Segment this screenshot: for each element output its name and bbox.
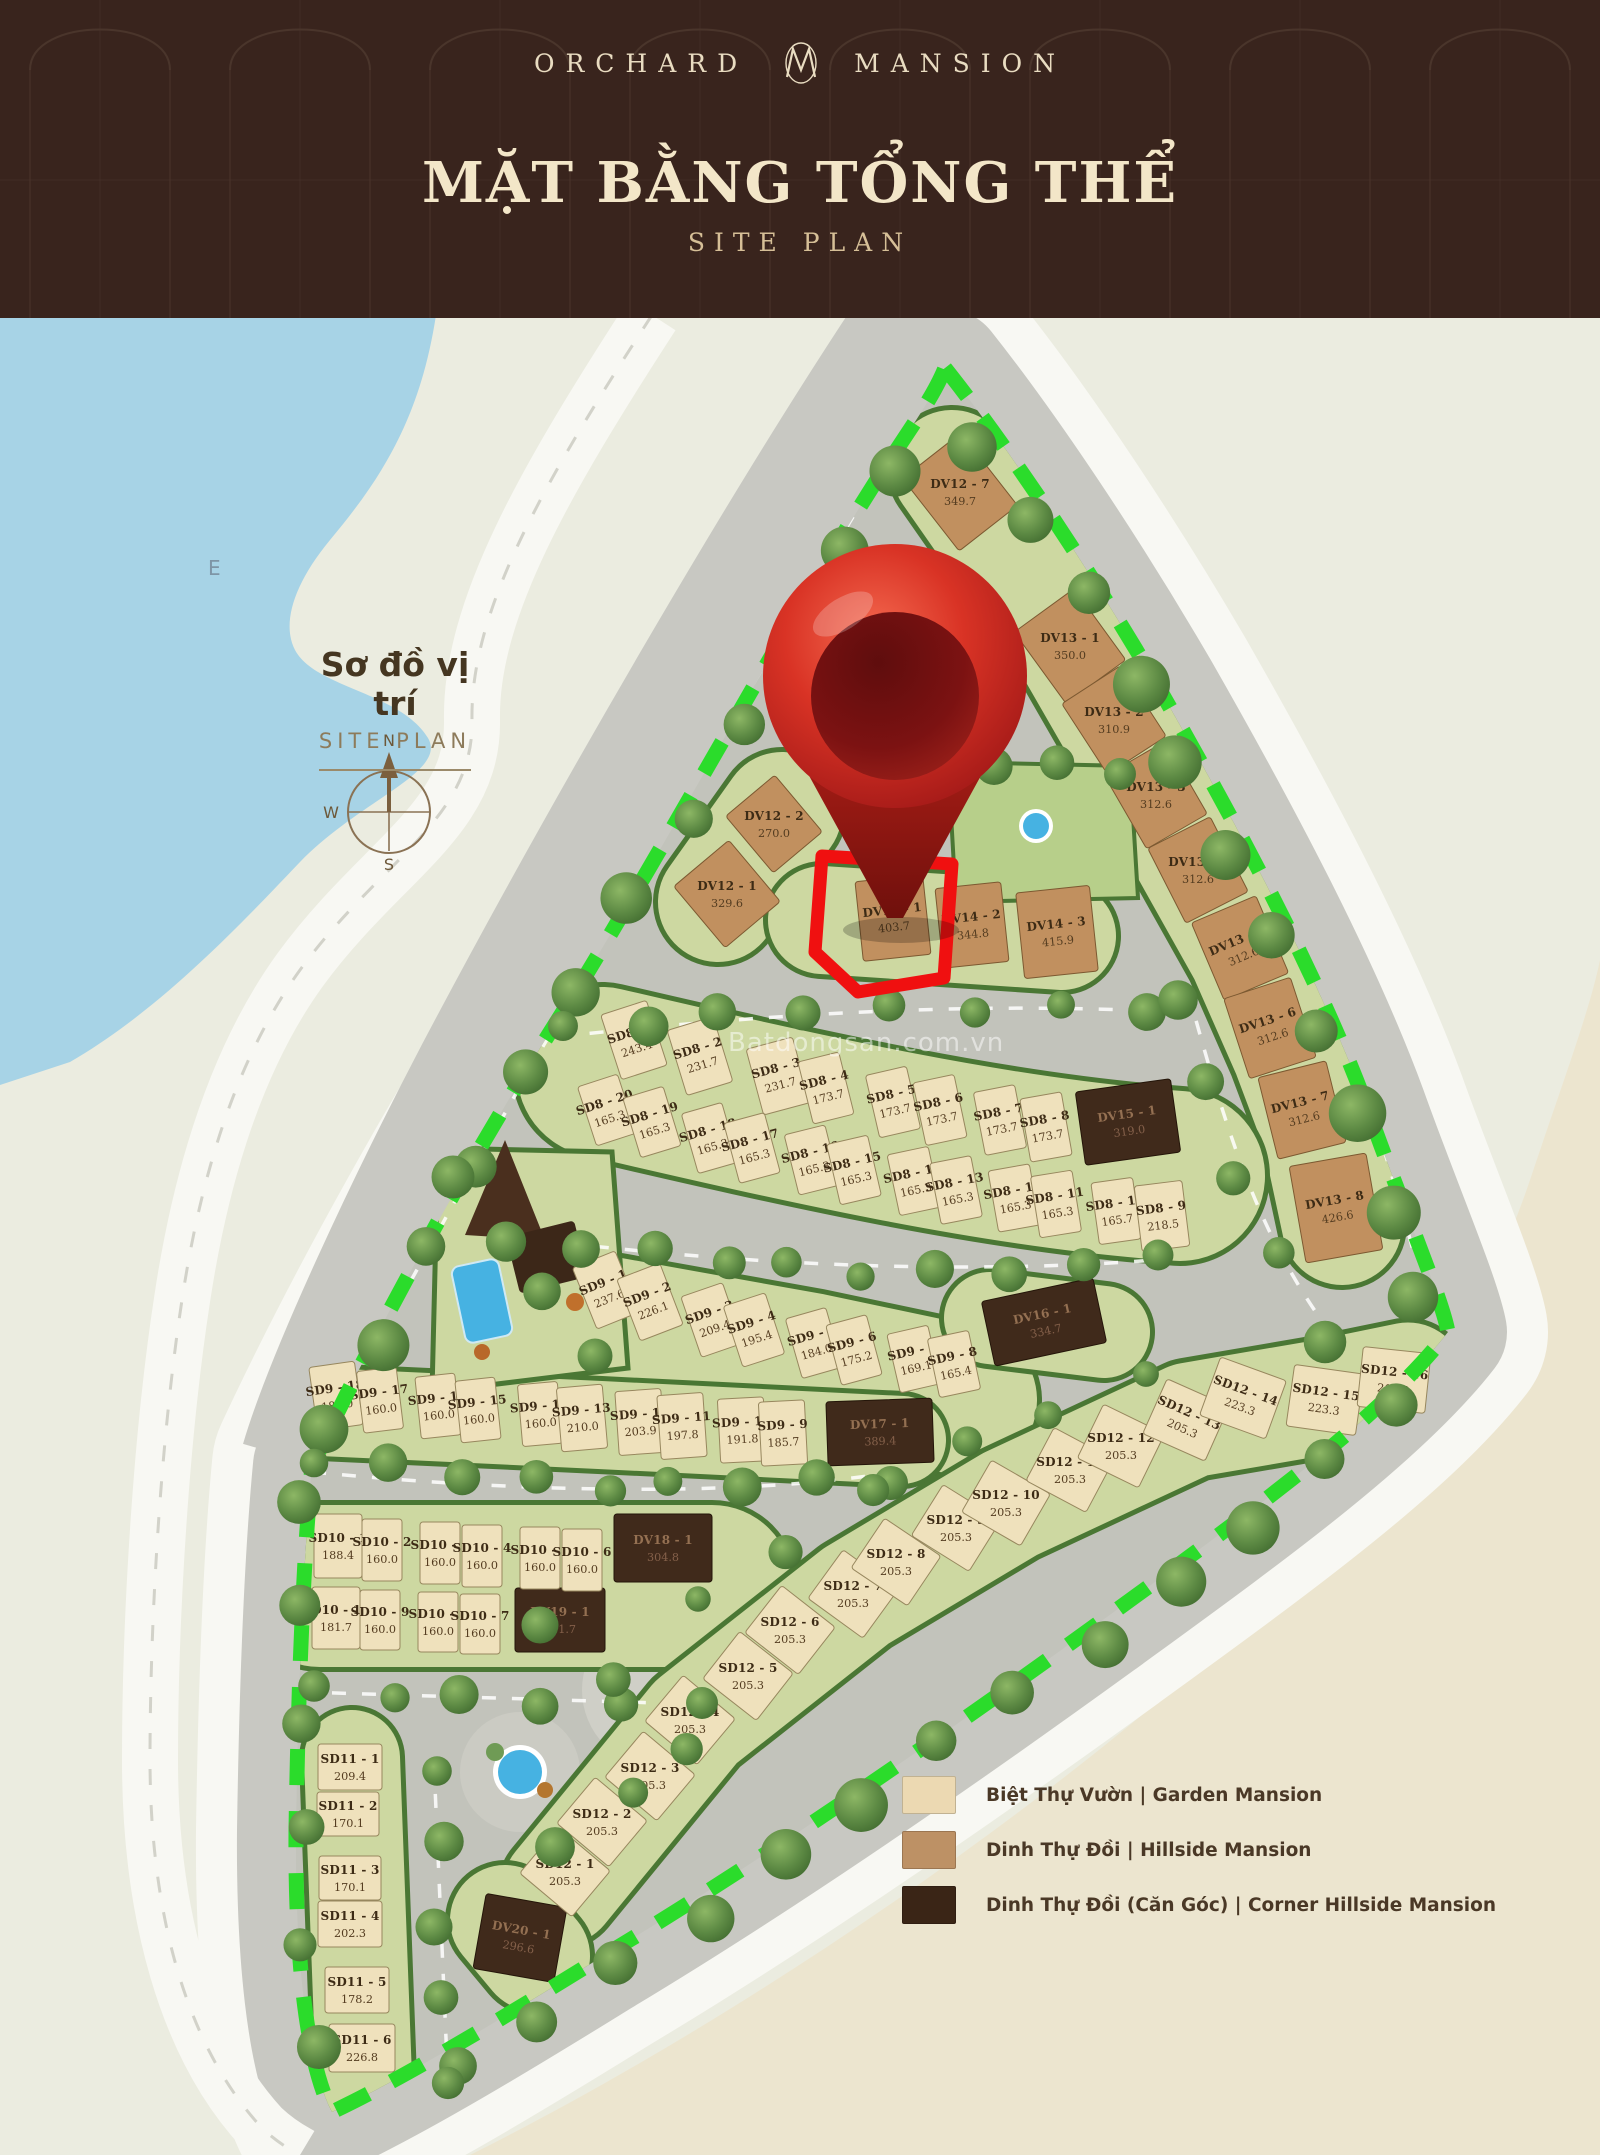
svg-text:209.4: 209.4 [334,1770,366,1783]
svg-text:205.3: 205.3 [1105,1449,1137,1462]
svg-text:W: W [323,803,339,822]
svg-text:270.0: 270.0 [758,827,790,840]
svg-text:205.3: 205.3 [732,1679,764,1692]
svg-text:160.0: 160.0 [366,1553,398,1566]
svg-text:312.6: 312.6 [1140,798,1172,811]
legend-swatch-hillside [902,1831,956,1869]
svg-text:160.0: 160.0 [364,1623,396,1636]
svg-text:160.0: 160.0 [524,1561,556,1574]
svg-text:350.0: 350.0 [1054,649,1086,662]
svg-text:DV12 - 7: DV12 - 7 [930,477,990,491]
svg-text:210.0: 210.0 [566,1420,599,1436]
svg-text:160.0: 160.0 [464,1627,496,1640]
page-title: MẶT BẰNG TỔNG THỂ [0,150,1600,216]
svg-text:SD11 - 3: SD11 - 3 [320,1863,379,1877]
svg-text:188.4: 188.4 [322,1549,354,1562]
lot-SD11-5: SD11 - 5178.2 [325,1967,389,2013]
lot-DV15-1: DV15 - 1319.0 [1075,1079,1180,1166]
lot-SD9-9: SD9 - 9185.7 [756,1400,810,1467]
svg-text:310.9: 310.9 [1098,723,1130,736]
water-label: E [208,556,221,580]
lot-DV14-3: DV14 - 3415.9 [1016,885,1099,978]
svg-text:SD11 - 4: SD11 - 4 [320,1909,379,1923]
svg-text:SD10 - 2: SD10 - 2 [352,1535,411,1549]
brand-monogram-icon [774,36,828,90]
brand-left: ORCHARD [534,49,748,78]
legend-swatch-garden [902,1776,956,1814]
legend-swatch-corner [902,1886,956,1924]
svg-text:SD10 - 4: SD10 - 4 [452,1541,511,1555]
lot-DV17-1: DV17 - 1389.4 [826,1398,934,1466]
svg-text:205.3: 205.3 [940,1531,972,1544]
svg-text:205.3: 205.3 [586,1825,618,1838]
svg-text:SD11 - 2: SD11 - 2 [318,1799,377,1813]
svg-text:329.6: 329.6 [711,897,743,910]
garden-pond [498,1750,542,1794]
svg-text:DV13 - 1: DV13 - 1 [1040,631,1100,645]
svg-text:160.0: 160.0 [424,1556,456,1569]
svg-text:DV12 - 1: DV12 - 1 [697,879,757,893]
inset-title: Sơ đồ vị trí [295,645,495,723]
lot-SD11-3: SD11 - 3170.1 [319,1856,381,1900]
svg-text:170.1: 170.1 [332,1817,364,1830]
svg-text:185.7: 185.7 [767,1435,800,1450]
lot-DV18-1: DV18 - 1304.8 [614,1514,712,1582]
svg-text:DV17 - 1: DV17 - 1 [850,1416,910,1432]
svg-text:SD12 - 5: SD12 - 5 [718,1661,777,1675]
svg-text:170.1: 170.1 [334,1881,366,1894]
svg-text:SD10 - 6: SD10 - 6 [552,1545,611,1559]
svg-text:SD11 - 1: SD11 - 1 [320,1752,379,1766]
park-pond [1023,813,1049,839]
svg-text:202.3: 202.3 [334,1927,366,1940]
svg-text:DV18 - 1: DV18 - 1 [633,1533,693,1547]
svg-text:226.8: 226.8 [346,2051,378,2064]
svg-text:160.0: 160.0 [466,1559,498,1572]
svg-text:SD12 - 2: SD12 - 2 [572,1807,631,1821]
svg-text:312.6: 312.6 [1182,873,1214,886]
page-subtitle: SITE PLAN [0,228,1600,257]
svg-text:205.3: 205.3 [990,1506,1022,1519]
svg-text:SD12 - 8: SD12 - 8 [866,1547,925,1561]
svg-text:SD10 - 7: SD10 - 7 [450,1609,509,1623]
svg-text:178.2: 178.2 [341,1993,373,2006]
watermark: Batdongsan.com.vn [728,1028,1004,1058]
svg-text:181.7: 181.7 [320,1621,352,1634]
legend-item-corner-hillside-mansion: Dinh Thự Đồi (Căn Góc) | Corner Hillside… [902,1887,1496,1923]
svg-text:197.8: 197.8 [666,1428,699,1443]
svg-text:SD10 - 9: SD10 - 9 [350,1605,409,1619]
svg-text:S: S [384,855,394,874]
brand-right: MANSION [854,49,1066,78]
svg-text:205.3: 205.3 [549,1875,581,1888]
svg-text:DV12 - 2: DV12 - 2 [744,809,804,823]
svg-text:SD12 - 10: SD12 - 10 [972,1488,1040,1502]
brand: ORCHARD MANSION [0,36,1600,90]
svg-text:191.8: 191.8 [726,1432,759,1447]
svg-text:SD12 - 3: SD12 - 3 [620,1761,679,1775]
site-plan-poster: DV12 - 7349.7DV13 - 1350.0DV13 - 2310.9D… [0,0,1600,2155]
lot-DV20-1: DV20 - 1296.6 [473,1893,567,1982]
svg-text:SD11 - 5: SD11 - 5 [327,1975,386,1989]
svg-text:205.3: 205.3 [774,1633,806,1646]
legend: Biệt Thự Vườn | Garden Mansion Dinh Thự … [902,1777,1496,1942]
svg-text:304.8: 304.8 [647,1551,679,1564]
svg-text:SD9 - 9: SD9 - 9 [757,1417,808,1434]
svg-text:SD11 - 6: SD11 - 6 [332,2033,391,2047]
legend-label: Dinh Thự Đồi (Căn Góc) | Corner Hillside… [986,1895,1496,1916]
svg-text:160.0: 160.0 [422,1625,454,1638]
inset-subtitle: SITE PLAN [295,729,495,753]
svg-text:205.3: 205.3 [837,1597,869,1610]
svg-text:205.3: 205.3 [880,1565,912,1578]
legend-label: Dinh Thự Đồi | Hillside Mansion [986,1840,1311,1861]
legend-label: Biệt Thự Vườn | Garden Mansion [986,1785,1322,1806]
svg-text:SD12 - 6: SD12 - 6 [760,1615,819,1629]
svg-text:349.7: 349.7 [944,495,976,508]
svg-text:389.4: 389.4 [864,1434,896,1448]
divider [319,769,471,771]
lot-SD11-2: SD11 - 2170.1 [317,1792,379,1836]
lot-SD11-4: SD11 - 4202.3 [318,1901,382,1947]
lot-SD12-15: SD12 - 15223.3 [1286,1364,1364,1435]
svg-text:205.3: 205.3 [1054,1473,1086,1486]
location-inset: Sơ đồ vị trí SITE PLAN [295,645,495,771]
lot-SD11-1: SD11 - 1209.4 [318,1744,382,1790]
header: ORCHARD MANSION MẶT BẰNG TỔNG THỂ SITE P… [0,0,1600,318]
legend-item-garden-mansion: Biệt Thự Vườn | Garden Mansion [902,1777,1496,1813]
svg-text:160.0: 160.0 [566,1563,598,1576]
legend-item-hillside-mansion: Dinh Thự Đồi | Hillside Mansion [902,1832,1496,1868]
